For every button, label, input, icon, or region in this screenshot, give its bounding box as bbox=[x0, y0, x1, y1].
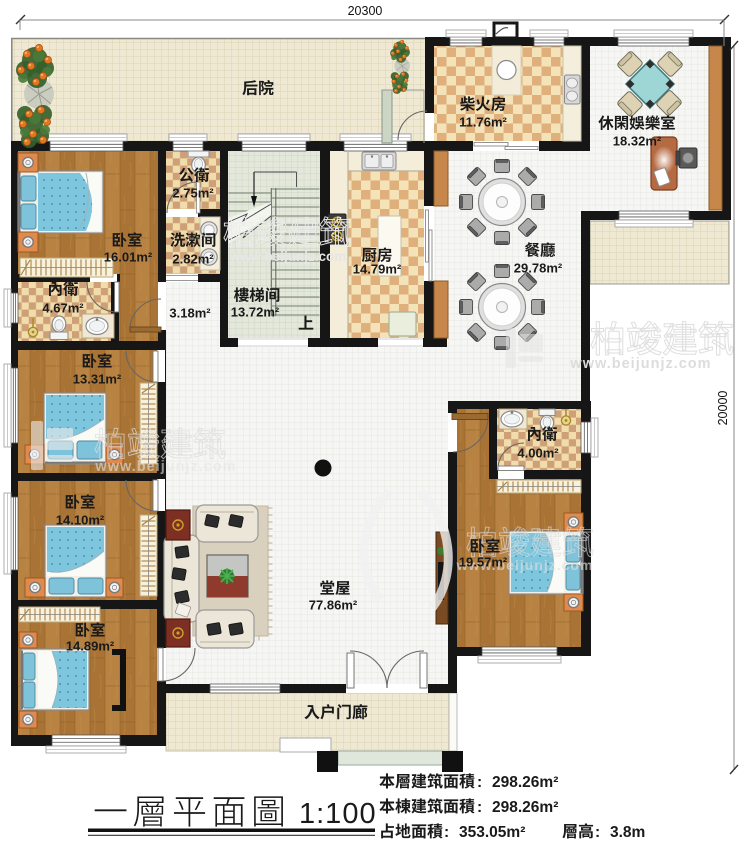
svg-text::: : bbox=[477, 799, 482, 816]
svg-text:14.10m²: 14.10m² bbox=[56, 513, 105, 528]
svg-text:298.26m²: 298.26m² bbox=[492, 799, 558, 816]
svg-text:11.76m²: 11.76m² bbox=[459, 115, 507, 130]
svg-text:13.31m²: 13.31m² bbox=[73, 372, 122, 387]
svg-text::: : bbox=[444, 824, 449, 841]
svg-text:3.18m²: 3.18m² bbox=[169, 306, 211, 321]
svg-text:2.82m²: 2.82m² bbox=[172, 252, 214, 267]
svg-text:www.beijunjz.com: www.beijunjz.com bbox=[229, 249, 347, 264]
svg-text:353.05m²: 353.05m² bbox=[459, 824, 525, 841]
svg-text:1:100: 1:100 bbox=[299, 798, 377, 830]
svg-text:www.beijunjz.com: www.beijunjz.com bbox=[94, 459, 236, 475]
svg-text:298.26m²: 298.26m² bbox=[492, 774, 558, 791]
svg-text:20000: 20000 bbox=[716, 391, 730, 426]
svg-text:77.86m²: 77.86m² bbox=[309, 598, 358, 613]
svg-text:18.32m²: 18.32m² bbox=[613, 134, 662, 149]
svg-text:19.57m²: 19.57m² bbox=[459, 555, 508, 570]
svg-text:13.72m²: 13.72m² bbox=[231, 305, 280, 320]
svg-text:3.8m: 3.8m bbox=[610, 824, 645, 841]
svg-text::: : bbox=[477, 774, 482, 791]
svg-text:4.67m²: 4.67m² bbox=[42, 301, 84, 316]
svg-text:20300: 20300 bbox=[348, 4, 383, 18]
svg-text:14.89m²: 14.89m² bbox=[66, 639, 115, 654]
svg-text:14.79m²: 14.79m² bbox=[353, 262, 402, 277]
svg-text:16.01m²: 16.01m² bbox=[104, 250, 153, 265]
svg-text:2.75m²: 2.75m² bbox=[172, 186, 214, 201]
svg-text:29.78m²: 29.78m² bbox=[514, 261, 563, 276]
svg-text::: : bbox=[595, 824, 600, 841]
svg-text:www.beijunjz.com: www.beijunjz.com bbox=[569, 356, 711, 372]
svg-text:4.00m²: 4.00m² bbox=[517, 446, 559, 461]
